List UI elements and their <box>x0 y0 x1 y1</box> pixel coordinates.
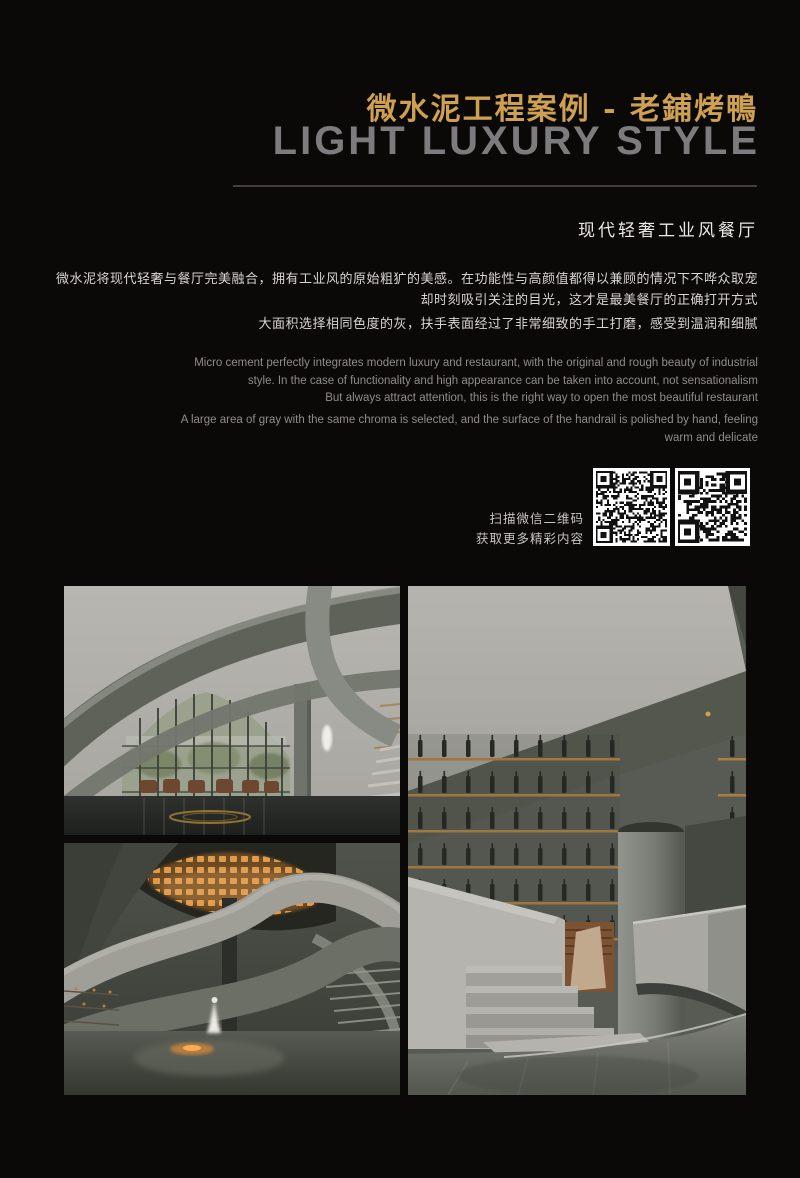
english-paragraph-2-line-2: warm and delicate <box>181 430 758 448</box>
wechat-qr-code-right <box>675 468 750 546</box>
chinese-paragraph-2-line-1: 大面积选择相同色度的灰，扶手表面经过了非常细致的手工打磨，感受到温润和细腻 <box>258 313 758 334</box>
chinese-paragraph-1-line-1: 微水泥将现代轻奢与餐厅完美融合，拥有工业风的原始粗犷的美感。在功能性与高颜值都得… <box>56 268 758 289</box>
english-paragraph-1-line-2: style. In the case of functionality and … <box>194 373 758 391</box>
poster: 微水泥工程案例 - 老鋪烤鴨 LIGHT LUXURY STYLE 现代轻奢工业… <box>0 0 800 1178</box>
photo-spiral-staircase-orange-installation <box>64 843 400 1095</box>
qr-caption-line-2: 获取更多精彩内容 <box>476 529 584 549</box>
chinese-paragraph-1: 微水泥将现代轻奢与餐厅完美融合，拥有工业风的原始粗犷的美感。在功能性与高颜值都得… <box>56 268 758 310</box>
english-paragraph-2: A large area of gray with the same chrom… <box>181 412 758 447</box>
subtitle: 现代轻奢工业风餐厅 <box>578 216 758 241</box>
wechat-qr-code-left <box>593 468 670 546</box>
english-paragraph-2-line-1: A large area of gray with the same chrom… <box>181 412 758 430</box>
divider-line <box>233 185 757 187</box>
qr-caption: 扫描微信二维码 获取更多精彩内容 <box>476 509 584 549</box>
chinese-paragraph-2: 大面积选择相同色度的灰，扶手表面经过了非常细致的手工打磨，感受到温润和细腻 <box>258 313 758 334</box>
photo-spiral-staircase-lobby <box>64 586 400 835</box>
page-title-english: LIGHT LUXURY STYLE <box>273 119 760 164</box>
qr-caption-line-1: 扫描微信二维码 <box>476 509 584 529</box>
chinese-paragraph-1-line-2: 却时刻吸引关注的目光，这才是最美餐厅的正确打开方式 <box>56 289 758 310</box>
english-paragraph-1-line-3: But always attract attention, this is th… <box>194 390 758 408</box>
english-paragraph-1: Micro cement perfectly integrates modern… <box>194 355 758 408</box>
english-paragraph-1-line-1: Micro cement perfectly integrates modern… <box>194 355 758 373</box>
photo-wine-wall-staircase <box>408 586 746 1095</box>
